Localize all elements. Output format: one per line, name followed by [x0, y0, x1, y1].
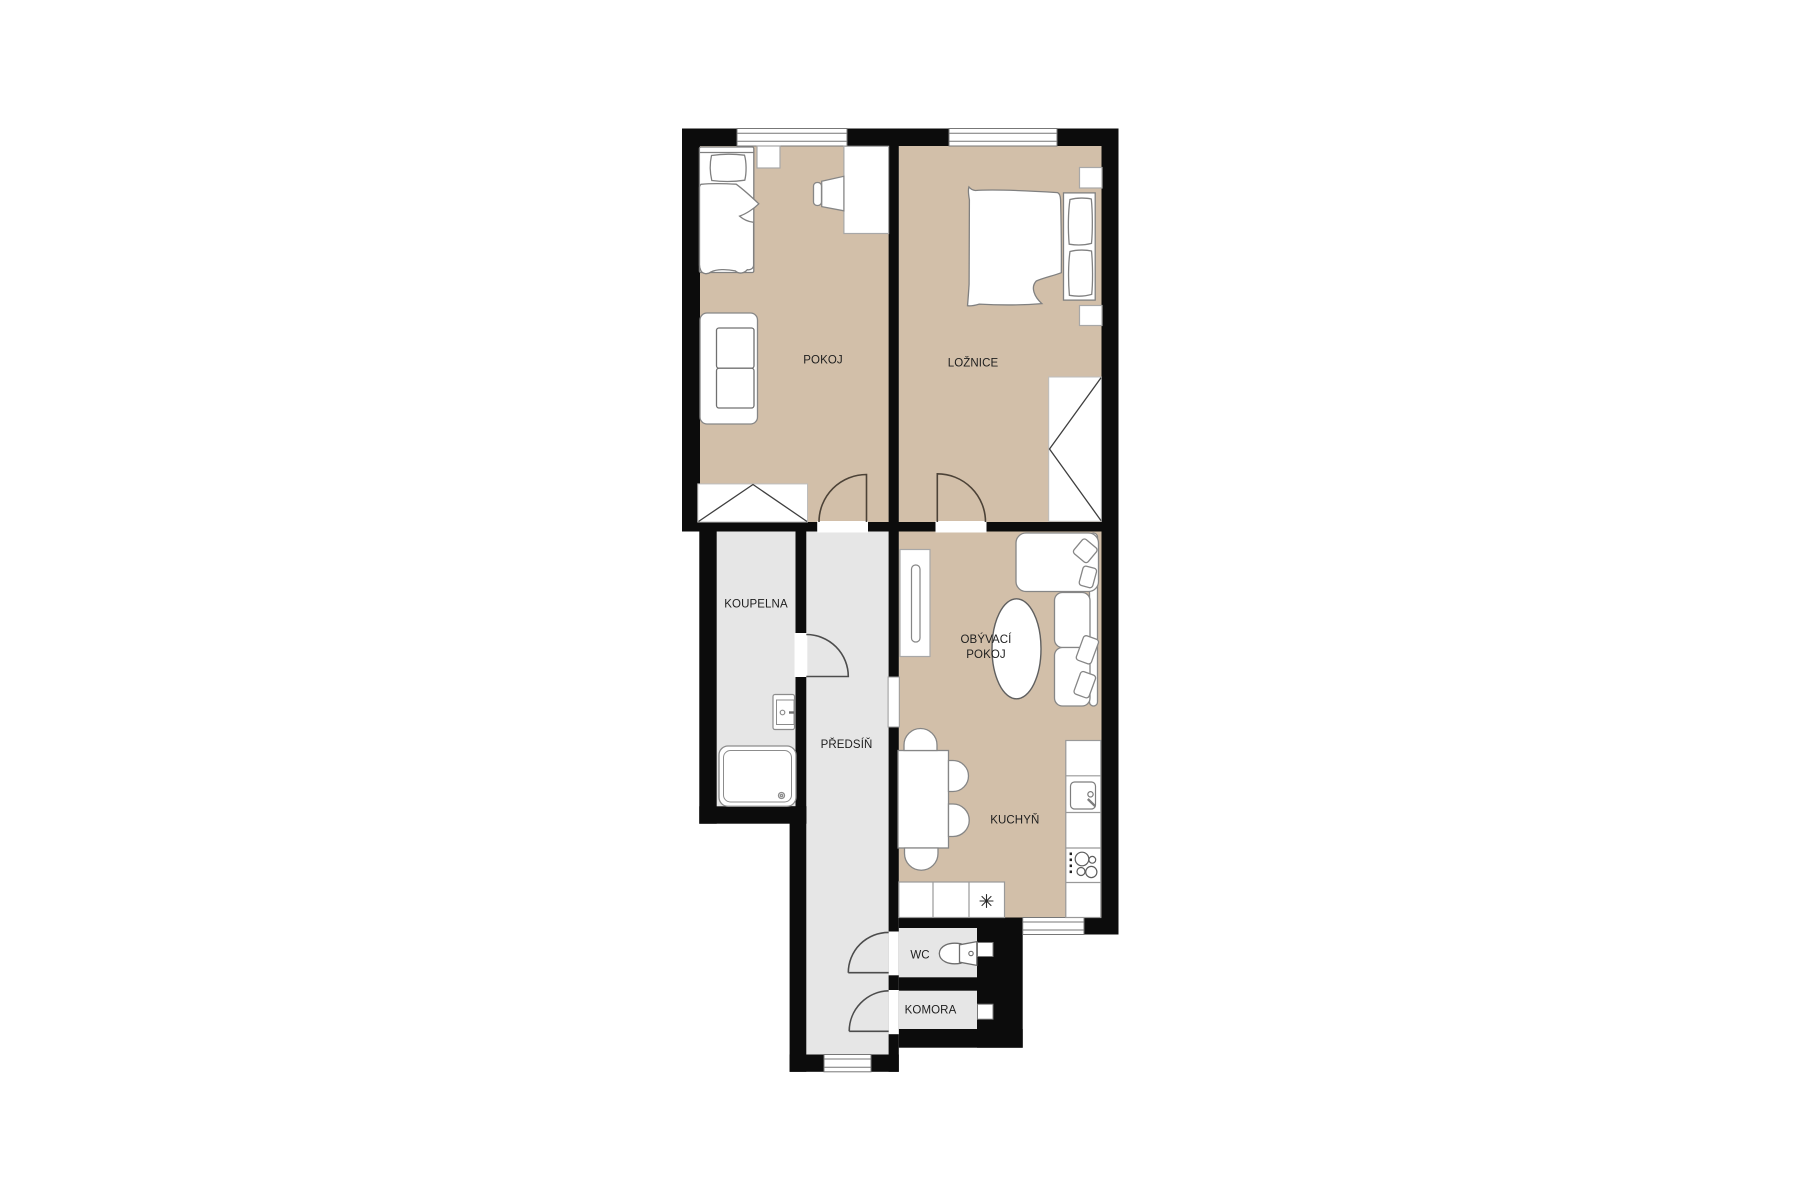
svg-text:OBÝVACÍ: OBÝVACÍ: [961, 633, 1013, 646]
svg-text:LOŽNICE: LOŽNICE: [948, 357, 999, 370]
svg-text:POKOJ: POKOJ: [803, 355, 842, 367]
svg-text:KUCHYŇ: KUCHYŇ: [990, 814, 1039, 827]
svg-text:KOUPELNA: KOUPELNA: [724, 599, 788, 611]
svg-text:WC: WC: [910, 950, 929, 962]
svg-text:POKOJ: POKOJ: [966, 649, 1005, 661]
svg-text:KOMORA: KOMORA: [905, 1005, 957, 1017]
svg-text:PŘEDSÍŇ: PŘEDSÍŇ: [821, 738, 873, 751]
